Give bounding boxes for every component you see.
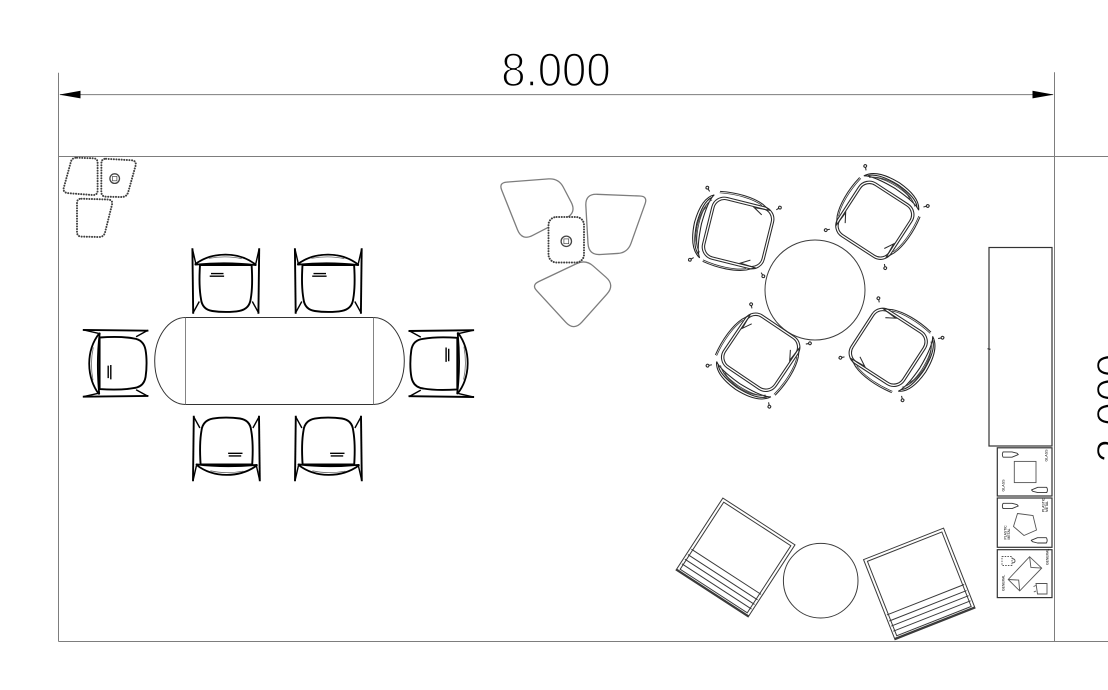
svg-text:3.000: 3.000 bbox=[1087, 353, 1108, 462]
svg-text:METAL: METAL bbox=[1007, 528, 1011, 539]
svg-text:GLASS: GLASS bbox=[1002, 479, 1006, 492]
svg-text:GENERAL: GENERAL bbox=[1002, 575, 1006, 591]
svg-text:GLASS: GLASS bbox=[1045, 449, 1049, 462]
svg-text:METAL: METAL bbox=[1045, 501, 1049, 512]
svg-text:GENERAL: GENERAL bbox=[1046, 549, 1050, 565]
svg-text:8.000: 8.000 bbox=[501, 43, 610, 96]
